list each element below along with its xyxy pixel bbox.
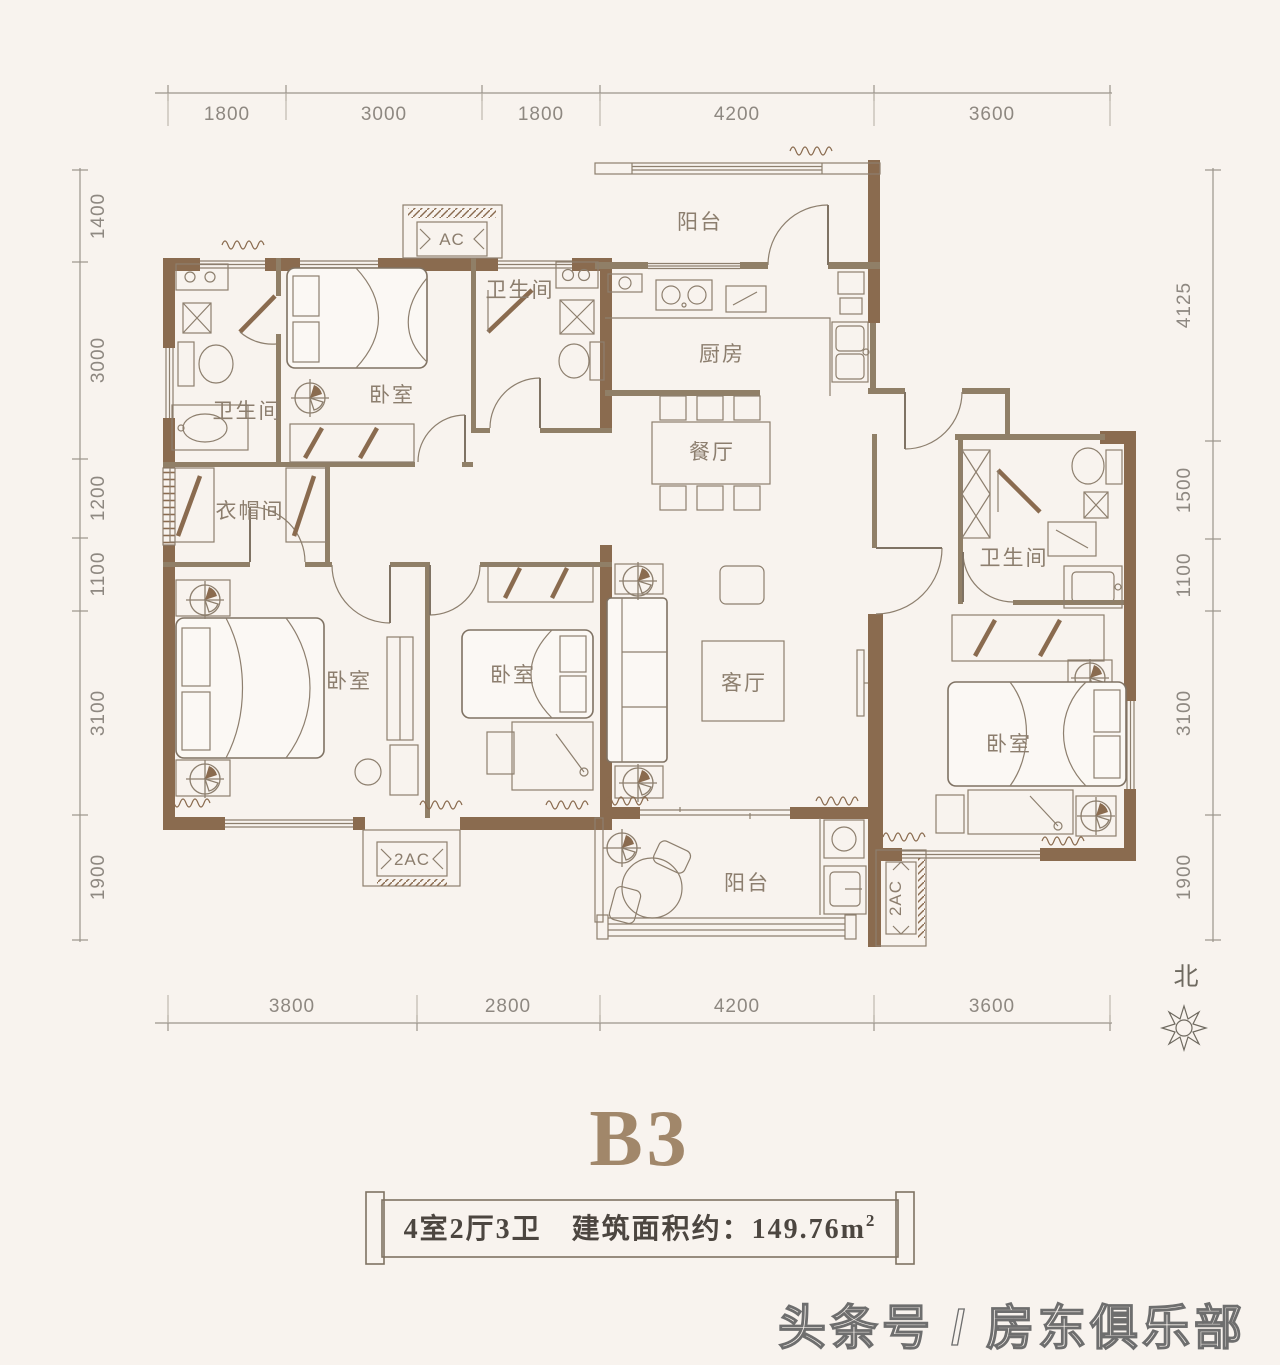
door-bedroom-right [876,548,942,614]
ac-bottom-right-label: 2AC [886,880,905,916]
desk-right [936,790,1073,834]
door-bath-left [240,296,276,344]
ac-unit-bottom-left: 2AC [363,830,460,886]
room-label-balcony-top: 阳台 [677,211,723,234]
spec-text: 4室2厅3卫 建筑面积约：149.76m2 [404,1211,877,1245]
dim-top-3000: 3000 [361,104,407,125]
dim-top-1800b: 1800 [518,104,564,125]
tv-panel [857,650,868,716]
dim-right-1100: 1100 [1174,553,1195,598]
window-right-suite-east [1127,701,1134,789]
dim-top-3600: 3600 [969,104,1015,125]
hall-table [720,566,764,604]
watermark: 头条号 / 房东俱乐部 [778,1302,1246,1355]
dimension-top: 1800 3000 1800 4200 3600 [155,85,1112,126]
wardrobe-right [952,615,1104,661]
dresser-stool [355,745,418,795]
bed-bottom-left [176,618,324,758]
north-label: 北 [1173,963,1198,991]
utility-shaft [962,450,990,538]
dim-right-1900: 1900 [1174,854,1195,900]
dim-bottom-3600: 3600 [969,996,1015,1017]
dimension-right: 4125 1500 1100 3100 1900 [1174,168,1221,942]
bath-mid-fixtures [556,262,604,380]
dim-right-1500: 1500 [1174,467,1195,513]
dim-bottom-3800: 3800 [269,996,315,1017]
ac-bottom-left-label: 2AC [394,850,430,869]
dimension-left: 1400 3000 1200 1100 3100 1900 [72,168,109,942]
window-living-slider [640,807,790,819]
nightstand [176,760,230,796]
dim-left-3100: 3100 [88,690,109,736]
door-entry [905,392,962,449]
laundry-fixtures [820,818,866,915]
room-label-dining: 餐厅 [689,441,735,464]
bed-top-left [287,268,427,368]
compass-rose-icon [1162,1006,1206,1050]
cloakroom-grille [163,468,175,545]
ceiling-fan-icon [186,760,224,798]
shower-screen-right [998,470,1040,512]
ceiling-fan-icon [186,581,224,619]
bath-right-fixtures [1048,448,1122,608]
balcony-bottom-left-wall [595,818,603,922]
sofa [607,598,667,762]
room-label-bedroom-bm: 卧室 [490,664,536,687]
wardrobe-top-left [290,424,414,462]
ceiling-fan-icon [603,829,641,867]
title-block: B3 4室2厅3卫 建筑面积约：149.76m2 [366,1095,914,1264]
dim-bottom-4200: 4200 [714,996,760,1017]
room-label-balcony-bottom: 阳台 [724,872,770,895]
dim-top-1800a: 1800 [204,104,250,125]
dim-left-1100: 1100 [88,552,109,597]
ac-unit-bottom-right: 2AC [876,850,926,946]
dim-left-1400: 1400 [88,193,109,239]
desk-bottom-middle [487,722,593,790]
window-top-2 [300,261,378,268]
dim-right-3100: 3100 [1174,690,1195,736]
balcony-round-table [608,839,692,925]
room-label-living: 客厅 [721,672,767,695]
dim-left-1900: 1900 [88,854,109,900]
room-label-bedroom-r: 卧室 [986,733,1032,756]
dimension-bottom: 3800 2800 4200 3600 [155,995,1112,1031]
ac-unit-top: AC [403,205,502,258]
ceiling-fan-icon [291,379,329,417]
window-bottom-left [225,820,353,827]
room-label-bedroom-bl: 卧室 [326,670,372,693]
floor-plan-page: 1800 3000 1800 4200 3600 3800 2800 4200 … [0,0,1280,1365]
room-label-kitchen: 厨房 [699,343,745,366]
door-balcony-top [768,205,828,265]
room-label-bedroom-tl: 卧室 [369,384,415,407]
spec-banner: 4室2厅3卫 建筑面积约：149.76m2 [366,1192,914,1264]
balcony-top-rail [595,163,880,174]
room-label-cloakroom: 衣帽间 [216,500,285,523]
window-kitchen-divider [648,264,740,269]
room-label-bath-left: 卫生间 [213,400,282,423]
kitchen-fixtures [605,272,869,396]
dim-top-4200: 4200 [714,104,760,125]
bed-right [948,682,1126,786]
plan-title: B3 [589,1095,690,1183]
wardrobe-bottom-left [387,637,413,740]
door-bedroom-bm [430,565,480,615]
door-bedroom-bl [332,565,390,623]
ceiling-fan-icon [619,764,657,802]
north-indicator: 北 [1162,963,1206,1050]
balcony-bottom-rail [597,915,856,939]
window-right-suite-south [902,851,1040,858]
room-label-bath-right: 卫生间 [980,547,1049,570]
dim-right-4125: 4125 [1174,282,1195,328]
door-bath-mid [490,378,540,428]
floor-plan-drawing: 1800 3000 1800 4200 3600 3800 2800 4200 … [0,0,1280,1365]
dim-bottom-2800: 2800 [485,996,531,1017]
bookshelf-bottom-middle [488,564,593,602]
ceiling-fan-icon [1077,797,1115,835]
furniture [170,262,1126,925]
ac-top-label: AC [439,230,465,249]
room-label-bath-mid: 卫生间 [486,279,555,302]
dim-left-1200: 1200 [88,475,109,521]
door-bedroom-tl [418,415,465,462]
dim-left-3000: 3000 [88,337,109,383]
